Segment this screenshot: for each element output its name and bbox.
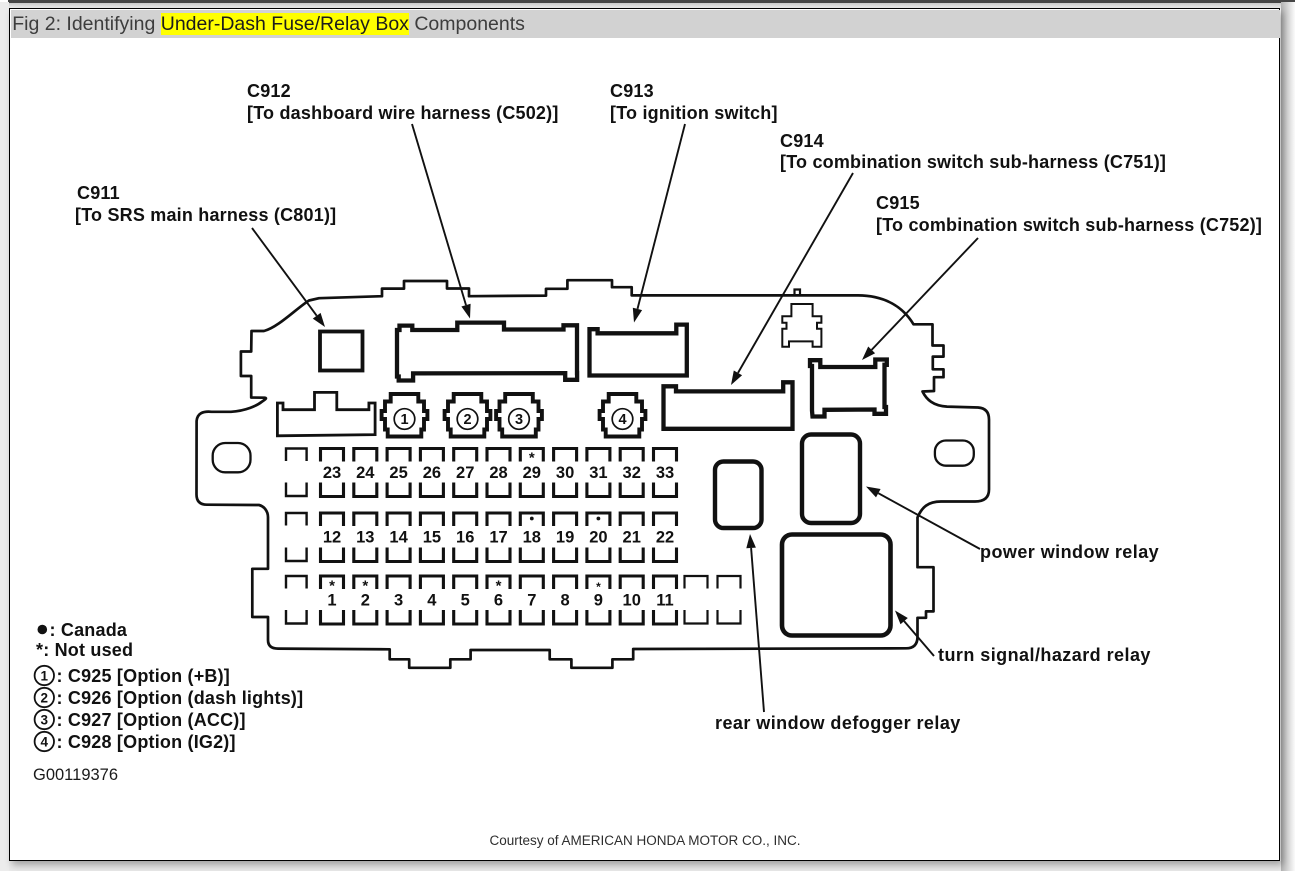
svg-text:28: 28 <box>489 464 507 482</box>
svg-text:: C927 [Option (ACC)]: : C927 [Option (ACC)] <box>57 710 246 730</box>
svg-text:G00119376: G00119376 <box>33 766 118 784</box>
svg-text:3: 3 <box>394 592 403 610</box>
svg-text:7: 7 <box>527 592 536 610</box>
svg-text:2: 2 <box>463 412 471 428</box>
svg-text:C911: C911 <box>77 183 120 203</box>
svg-text:[To dashboard wire harness (C5: [To dashboard wire harness (C502)] <box>247 103 559 123</box>
svg-text:32: 32 <box>623 464 641 482</box>
svg-text:*: * <box>496 578 502 595</box>
svg-text:21: 21 <box>623 529 641 547</box>
svg-text:C915: C915 <box>876 193 920 213</box>
svg-text:10: 10 <box>623 592 641 610</box>
svg-text:: Canada: : Canada <box>50 620 128 640</box>
svg-text:4: 4 <box>618 412 626 428</box>
svg-text:23: 23 <box>323 464 341 482</box>
svg-text:16: 16 <box>456 529 474 547</box>
svg-text:[To combination switch sub-har: [To combination switch sub-harness (C752… <box>876 215 1262 235</box>
svg-text:3: 3 <box>41 713 49 728</box>
svg-text:19: 19 <box>556 529 574 547</box>
svg-text:1: 1 <box>400 412 408 428</box>
svg-text:33: 33 <box>656 464 674 482</box>
svg-text:15: 15 <box>423 529 441 547</box>
svg-text:13: 13 <box>356 529 374 547</box>
svg-text:C914: C914 <box>780 131 824 151</box>
svg-text:turn signal/hazard relay: turn signal/hazard relay <box>938 645 1151 665</box>
svg-text:C912: C912 <box>247 81 291 101</box>
svg-text:*: Not used: *: Not used <box>36 640 133 660</box>
svg-text:25: 25 <box>389 464 407 482</box>
svg-text:: C926 [Option (dash lights)]: : C926 [Option (dash lights)] <box>57 688 304 708</box>
svg-text:20: 20 <box>589 529 607 547</box>
svg-text:3: 3 <box>515 412 523 428</box>
svg-text:17: 17 <box>489 529 507 547</box>
svg-text:4: 4 <box>41 735 49 750</box>
svg-text:*: * <box>529 450 535 467</box>
svg-text:4: 4 <box>427 592 437 610</box>
svg-text:[To combination switch sub-har: [To combination switch sub-harness (C751… <box>780 152 1166 172</box>
svg-text:24: 24 <box>356 464 375 482</box>
svg-text:*: * <box>329 578 335 595</box>
svg-text:*: * <box>596 580 601 594</box>
svg-text:*: * <box>362 578 368 595</box>
svg-text:[To ignition switch]: [To ignition switch] <box>610 103 778 123</box>
svg-text:5: 5 <box>461 592 470 610</box>
svg-text:9: 9 <box>594 592 603 610</box>
svg-text:1: 1 <box>41 669 49 684</box>
svg-text:14: 14 <box>389 529 408 547</box>
svg-text:2: 2 <box>41 691 49 706</box>
svg-text:31: 31 <box>589 464 607 482</box>
svg-text:12: 12 <box>323 529 341 547</box>
svg-text:27: 27 <box>456 464 474 482</box>
svg-text:[To SRS main harness (C801)]: [To SRS main harness (C801)] <box>75 205 336 225</box>
svg-text:power window relay: power window relay <box>980 542 1159 562</box>
svg-text:30: 30 <box>556 464 574 482</box>
svg-text:C913: C913 <box>610 81 654 101</box>
svg-text:: C928 [Option (IG2)]: : C928 [Option (IG2)] <box>57 732 236 752</box>
svg-text:rear window defogger relay: rear window defogger relay <box>715 713 961 733</box>
svg-text:29: 29 <box>523 464 541 482</box>
svg-text:11: 11 <box>656 592 673 610</box>
svg-text:8: 8 <box>561 592 570 610</box>
svg-text:22: 22 <box>656 529 674 547</box>
svg-text:: C925 [Option (+B)]: : C925 [Option (+B)] <box>57 666 231 686</box>
svg-text:26: 26 <box>423 464 441 482</box>
svg-text:18: 18 <box>523 529 541 547</box>
